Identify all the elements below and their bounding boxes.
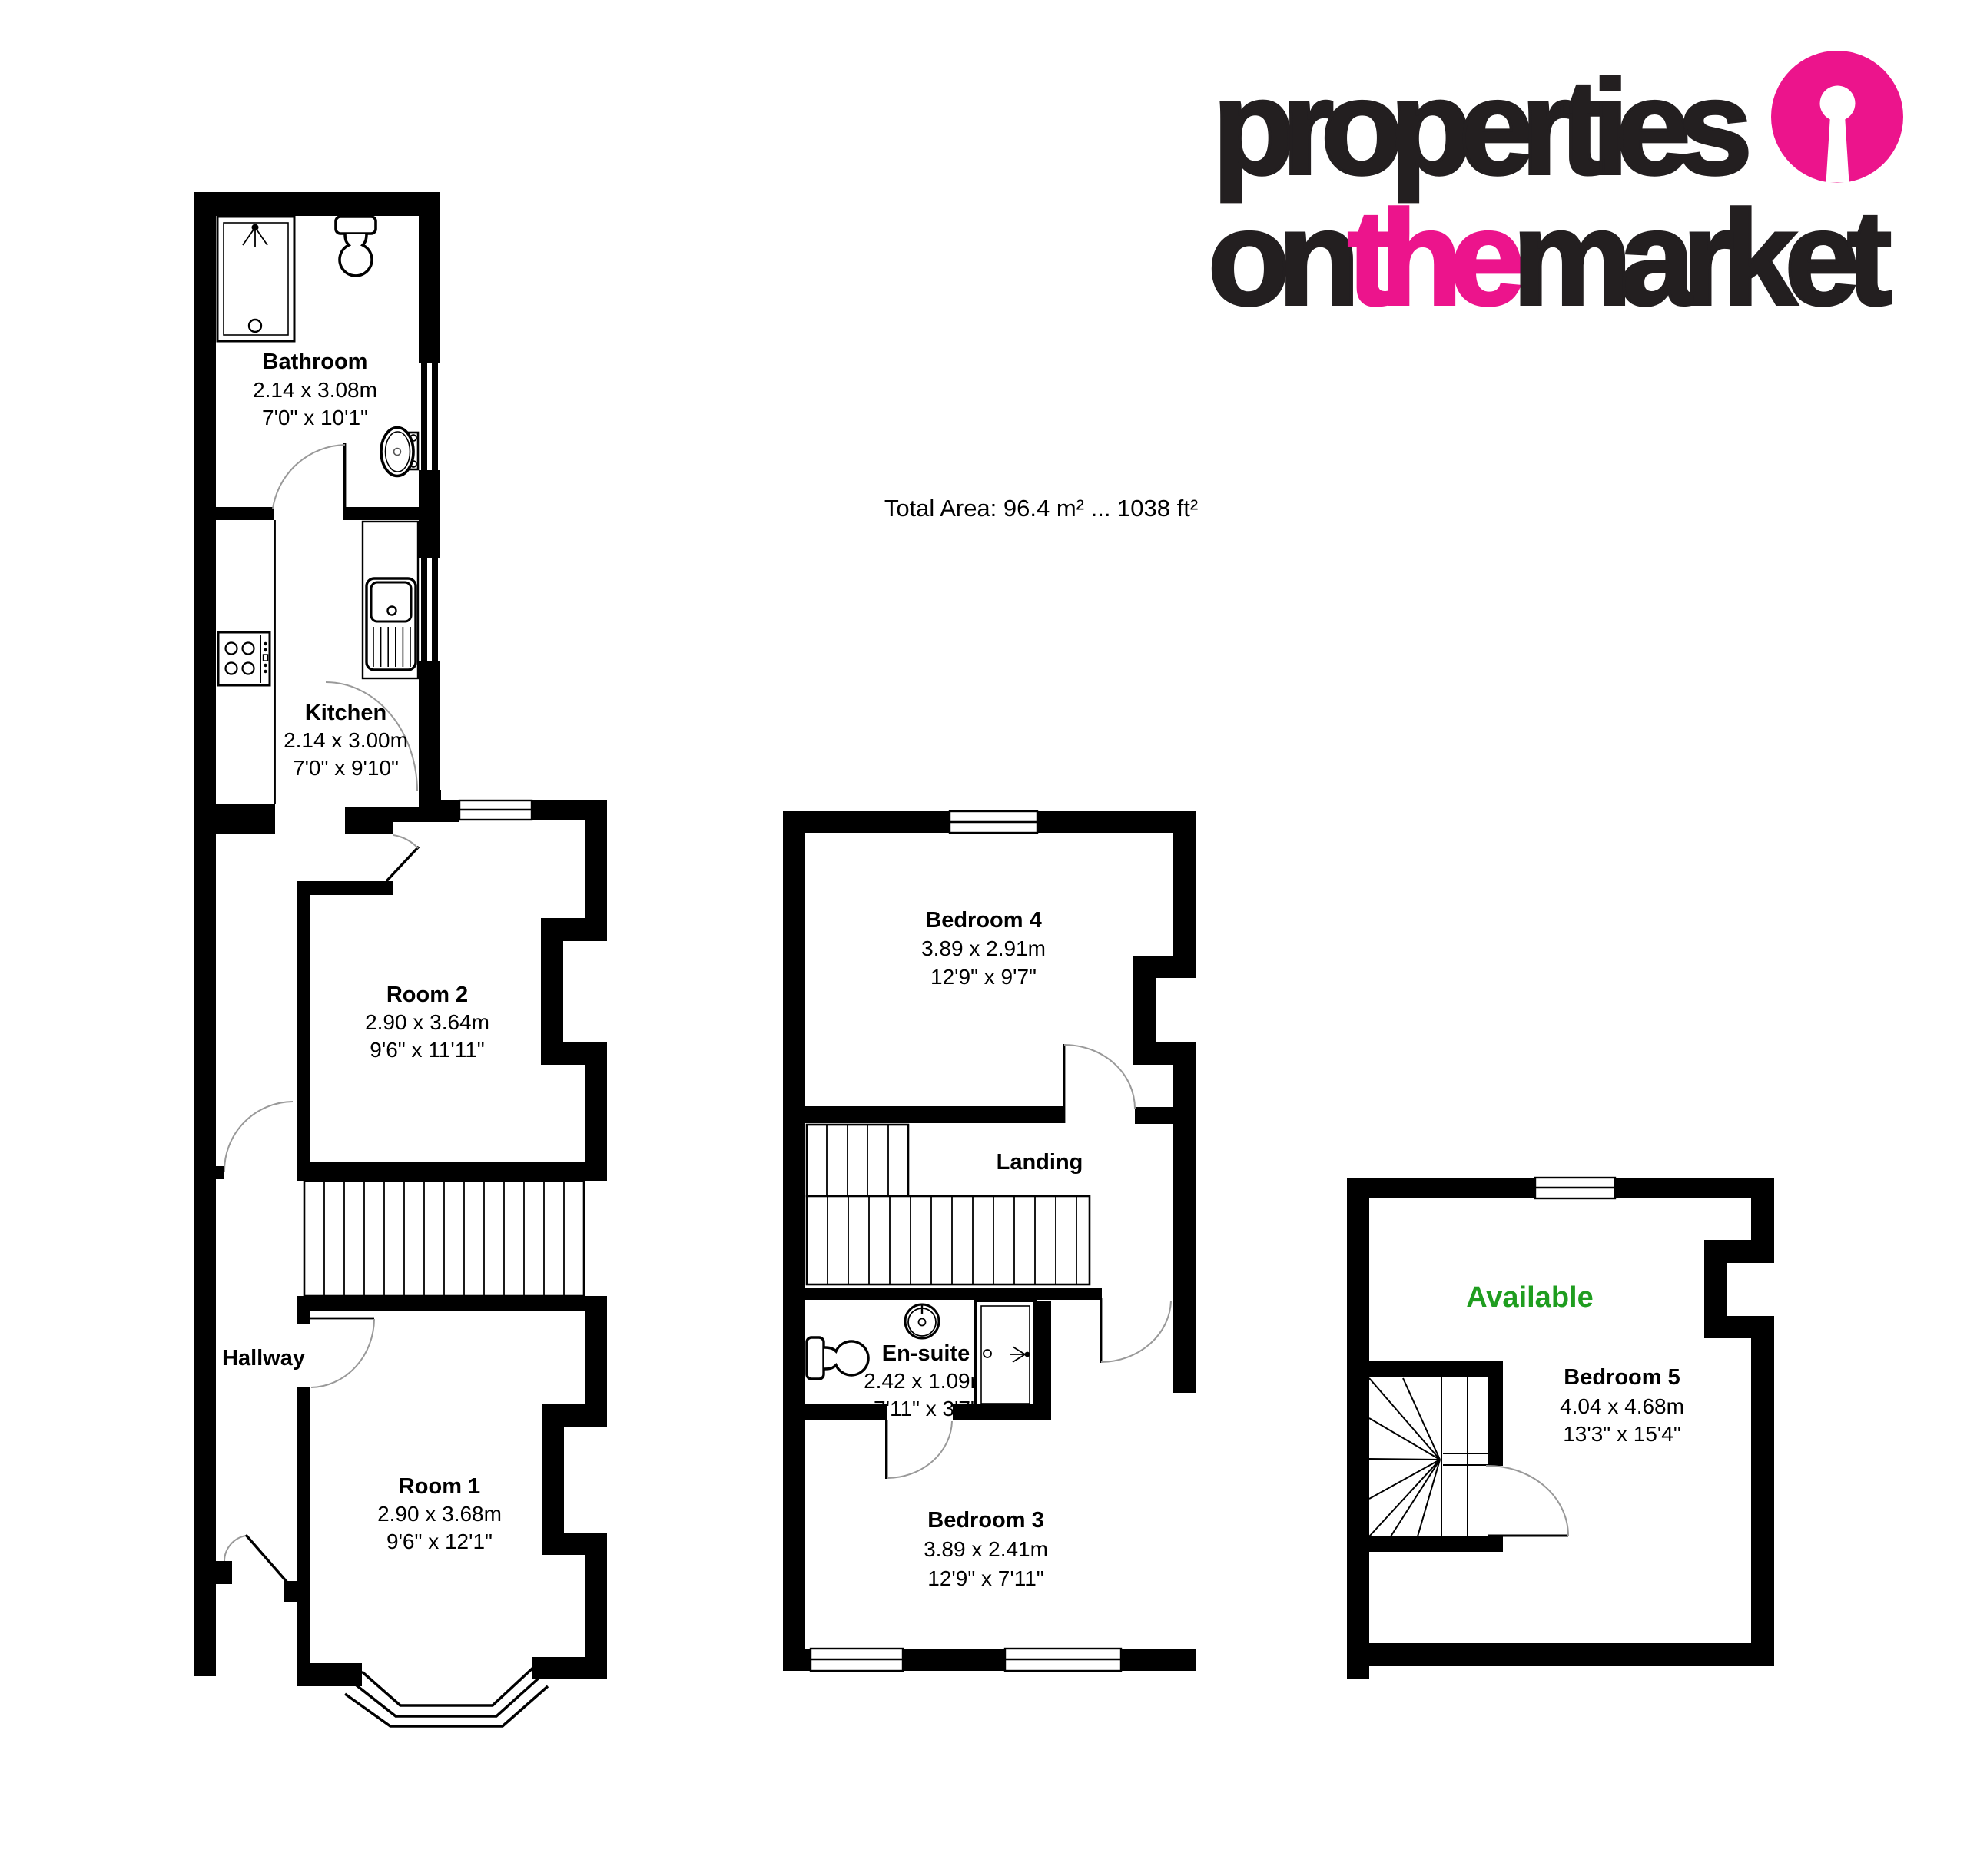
svg-text:Kitchen: Kitchen (305, 701, 386, 725)
svg-text:3.89 x 2.91m: 3.89 x 2.91m (921, 936, 1046, 960)
svg-text:Bedroom 4: Bedroom 4 (925, 908, 1041, 933)
svg-text:Total Area: 96.4 m² ... 1038 f: Total Area: 96.4 m² ... 1038 ft² (884, 495, 1198, 522)
svg-text:Hallway: Hallway (222, 1346, 305, 1371)
svg-text:3.89 x 2.41m: 3.89 x 2.41m (924, 1537, 1048, 1561)
svg-text:9'6" x 12'1": 9'6" x 12'1" (386, 1530, 493, 1553)
svg-text:Bedroom 5: Bedroom 5 (1564, 1365, 1680, 1390)
svg-text:12'9" x 9'7": 12'9" x 9'7" (930, 965, 1037, 989)
svg-text:4.04 x 4.68m: 4.04 x 4.68m (1560, 1394, 1684, 1418)
svg-text:Bathroom: Bathroom (263, 350, 368, 374)
svg-text:9'6" x 11'11": 9'6" x 11'11" (370, 1038, 484, 1062)
svg-text:2.14 x 3.00m: 2.14 x 3.00m (284, 728, 408, 752)
svg-text:properties: properties (1212, 53, 1747, 203)
svg-text:2.14 x 3.08m: 2.14 x 3.08m (253, 378, 377, 402)
svg-text:En-suite: En-suite (882, 1341, 970, 1366)
svg-text:12'9" x 7'11": 12'9" x 7'11" (927, 1566, 1043, 1590)
svg-text:2.90 x 3.64m: 2.90 x 3.64m (365, 1010, 489, 1034)
svg-text:7'0" x 10'1": 7'0" x 10'1" (262, 406, 368, 429)
svg-text:Room 1: Room 1 (399, 1474, 480, 1499)
svg-text:2.90 x 3.68m: 2.90 x 3.68m (377, 1502, 502, 1526)
svg-text:2.42 x 1.09m: 2.42 x 1.09m (864, 1369, 988, 1393)
svg-text:7'0" x 9'10": 7'0" x 9'10" (293, 756, 399, 780)
svg-text:13'3" x 15'4": 13'3" x 15'4" (1563, 1422, 1681, 1446)
svg-text:Bedroom 3: Bedroom 3 (927, 1508, 1043, 1533)
svg-text:onthemarket: onthemarket (1208, 184, 1891, 333)
svg-text:Room 2: Room 2 (386, 983, 468, 1007)
svg-text:Available: Available (1466, 1281, 1593, 1314)
svg-text:Landing: Landing (997, 1150, 1083, 1175)
